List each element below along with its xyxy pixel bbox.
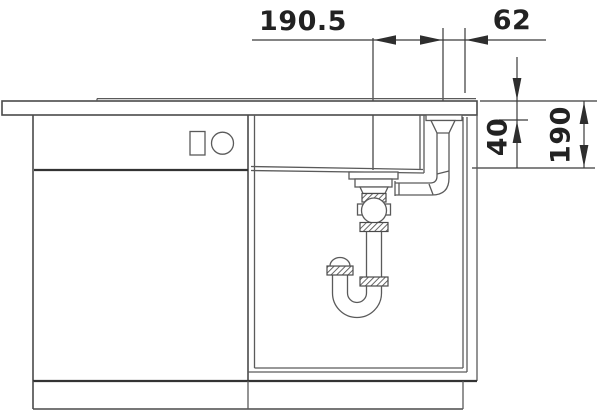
cabinet (33, 115, 477, 409)
arrow-right-icon (420, 35, 442, 45)
trap-bend-inner (348, 293, 367, 303)
drawer-symbol-rect (190, 132, 205, 156)
sink-section-diagram: 190.5 62 40 190 (0, 0, 600, 414)
elbow-outer (395, 178, 449, 195)
countertop (2, 99, 477, 115)
dimension-vertical-group: 40 190 (472, 57, 597, 168)
coupling-nut-upper (360, 223, 388, 232)
arrow-left-icon (466, 35, 488, 45)
arrow-up-icon (580, 102, 589, 124)
overflow-funnel (431, 121, 455, 134)
plinth (33, 381, 463, 409)
overflow-pipe (395, 121, 455, 197)
arrow-up-icon (513, 121, 522, 143)
dim-label-190-5: 190.5 (259, 6, 347, 37)
drain-taper (360, 187, 388, 194)
siphon-trap (327, 232, 388, 318)
trap-arm-nut (327, 266, 353, 275)
arrow-down-icon (580, 145, 589, 167)
elbow-seam-top (437, 171, 449, 174)
drain-flange-lower (355, 179, 392, 187)
drain-flange-upper (349, 172, 398, 179)
sink-flange-right (426, 115, 462, 121)
arrow-left-icon (374, 35, 396, 45)
elbow-inner (395, 176, 437, 183)
coupling-nut-lower (360, 277, 388, 286)
dim-label-40: 40 (483, 118, 514, 157)
ball-joint (362, 198, 387, 223)
trap-arm-cap (330, 258, 350, 267)
dim-label-62: 62 (493, 5, 532, 36)
elbow-seam-bottom (429, 184, 433, 195)
technical-drawing-canvas: 190.5 62 40 190 (0, 0, 600, 414)
trap-bend-outer (333, 293, 382, 318)
dim-label-190: 190 (546, 106, 577, 164)
arrow-down-icon (513, 78, 522, 100)
bowl-bottom-inner (251, 167, 423, 170)
drawer-symbol-circle (212, 132, 234, 154)
countertop-panel (2, 101, 477, 115)
sink-bowl (251, 115, 462, 173)
drain-assembly (349, 172, 398, 232)
